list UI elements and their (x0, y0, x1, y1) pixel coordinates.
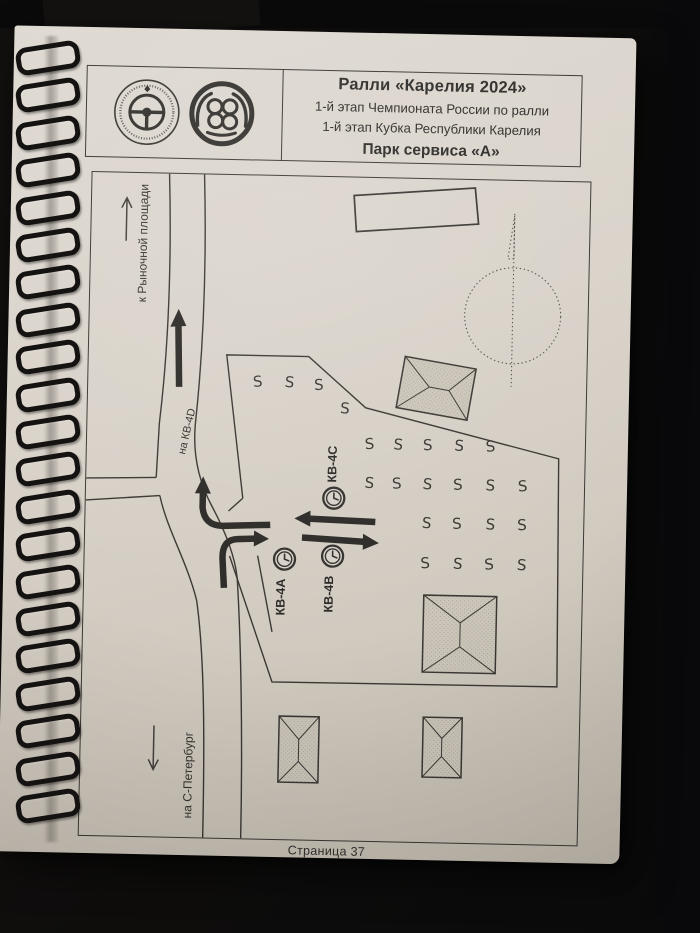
monument-circle (463, 213, 563, 388)
spiral-coil (14, 39, 82, 77)
parking-rectangle (353, 186, 479, 235)
spiral-coil (14, 114, 82, 152)
service-slot-marker: S (452, 554, 463, 573)
spiral-coil (14, 77, 82, 115)
service-slot-marker: S (422, 475, 433, 494)
service-slot-marker: S (421, 514, 432, 533)
service-slot-marker: S (517, 477, 528, 496)
route-arrows (165, 309, 384, 591)
map-drawing: к Рыночной площади на КВ-4D на С-Петербу… (79, 172, 591, 845)
service-slot-marker: S (364, 435, 375, 454)
cup-subtitle: 1-й этап Кубка Республики Карелия (322, 117, 541, 141)
service-slot-marker: S (252, 372, 263, 391)
service-slot-marker: S (420, 554, 430, 572)
spiral-coil (14, 638, 82, 676)
header-titles: Ралли «Карелия 2024» 1-й этап Чемпионата… (282, 70, 582, 166)
spiral-coil (14, 451, 82, 489)
service-slot-marker: S (485, 515, 496, 534)
arrow-to-st-petersburg (148, 725, 159, 769)
spiral-coil (14, 376, 82, 414)
label-time-control-b: КВ-4В (321, 576, 336, 613)
service-slot-marker: S (452, 515, 462, 533)
building-top (396, 356, 476, 420)
spiral-binding (0, 0, 100, 933)
time-control-clock-icon-c (323, 487, 344, 508)
service-slot-marker: S (485, 437, 496, 456)
spiral-coil (14, 226, 82, 264)
service-slots-layer: SSSSSSSSSSSSSSSSSSSSSSS (248, 372, 531, 575)
service-park-title: Парк сервиса «А» (362, 137, 500, 163)
service-slot-marker: S (314, 376, 324, 394)
photo-background: Ралли «Карелия 2024» 1-й этап Чемпионата… (0, 0, 700, 933)
raf-steering-wheel-logo-icon (112, 77, 181, 146)
service-slot-marker: S (340, 399, 351, 418)
service-slot-marker: S (454, 436, 465, 455)
spiral-coil (14, 264, 82, 302)
service-slot-marker: S (517, 516, 527, 534)
route-arrow-turn-east (222, 538, 256, 589)
service-slot-marker: S (484, 555, 495, 574)
spiral-coil (14, 151, 82, 189)
route-arrow-west (308, 519, 375, 522)
spiral-coil (14, 301, 82, 339)
spiral-coil (14, 600, 82, 638)
desk-surface-right (640, 0, 700, 933)
spiral-coil (14, 525, 82, 563)
time-control-clock-icon-b (322, 545, 343, 566)
road-lines (79, 172, 255, 838)
service-slot-marker: S (516, 556, 527, 575)
spiral-coil (14, 413, 82, 451)
spiral-coil (14, 488, 82, 526)
logo-cell (86, 66, 284, 160)
federation-wings-rings-logo-icon (187, 79, 256, 148)
label-time-control-c: КВ-4С (325, 446, 340, 483)
spiral-coil (14, 675, 82, 713)
service-slot-marker: S (485, 476, 496, 495)
service-slot-marker: S (453, 476, 463, 494)
building-small-left (278, 716, 319, 783)
spiral-coil (14, 189, 82, 227)
service-area-boundary (220, 355, 564, 688)
service-park-map: к Рыночной площади на КВ-4D на С-Петербу… (78, 171, 592, 846)
route-arrow-north-road (177, 324, 180, 387)
label-to-st-petersburg: на С-Петербург (180, 731, 196, 818)
spiral-coil (14, 338, 82, 376)
service-slot-marker: S (392, 474, 402, 492)
label-time-control-a: КВ-4А (273, 579, 288, 616)
arrow-to-market-square (121, 198, 132, 241)
spiral-coil (14, 750, 82, 788)
label-to-market-square: к Рыночной площади (135, 184, 151, 303)
spiral-coil (14, 563, 82, 601)
building-large (422, 595, 497, 674)
spiral-coil (14, 787, 82, 825)
service-slot-marker: S (423, 436, 433, 454)
route-arrow-east (302, 538, 365, 542)
service-slot-marker: S (284, 373, 295, 392)
service-slot-marker: S (364, 474, 375, 493)
time-control-clock-icon-a (274, 548, 295, 569)
service-slot-marker: S (393, 435, 404, 454)
spiral-coil (14, 712, 82, 750)
building-small-right (422, 717, 462, 778)
header-table: Ралли «Карелия 2024» 1-й этап Чемпионата… (85, 65, 583, 167)
